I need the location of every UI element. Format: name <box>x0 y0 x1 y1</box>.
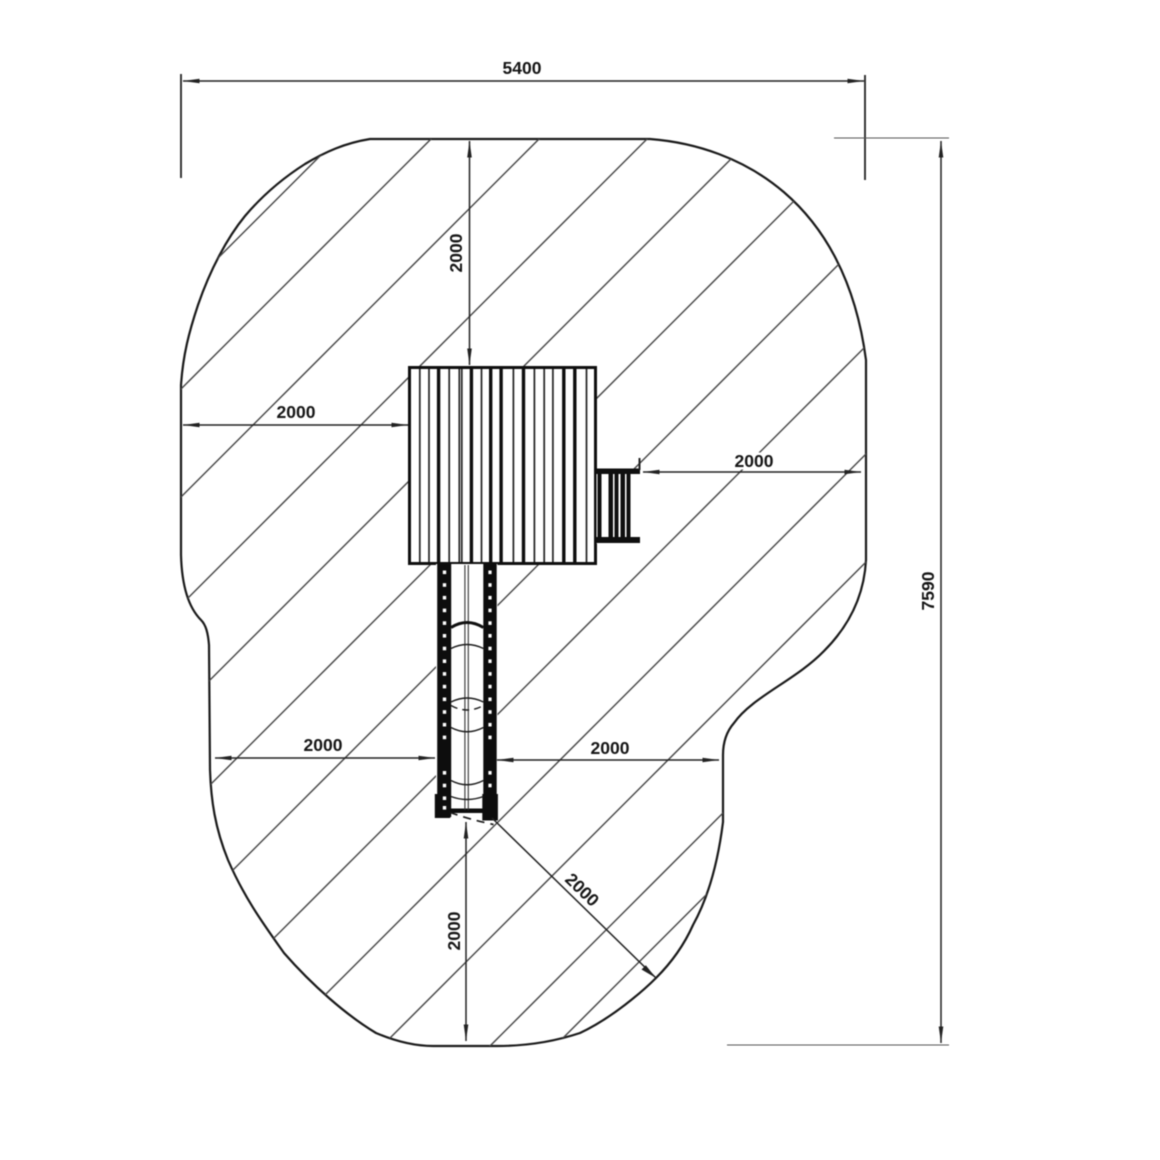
svg-text:2000: 2000 <box>304 735 343 755</box>
svg-text:2000: 2000 <box>591 738 630 758</box>
svg-text:2000: 2000 <box>444 911 464 950</box>
svg-text:7590: 7590 <box>918 571 938 610</box>
svg-text:2000: 2000 <box>735 451 774 471</box>
svg-text:5400: 5400 <box>503 58 542 78</box>
svg-text:2000: 2000 <box>446 233 466 272</box>
svg-text:2000: 2000 <box>277 402 316 422</box>
